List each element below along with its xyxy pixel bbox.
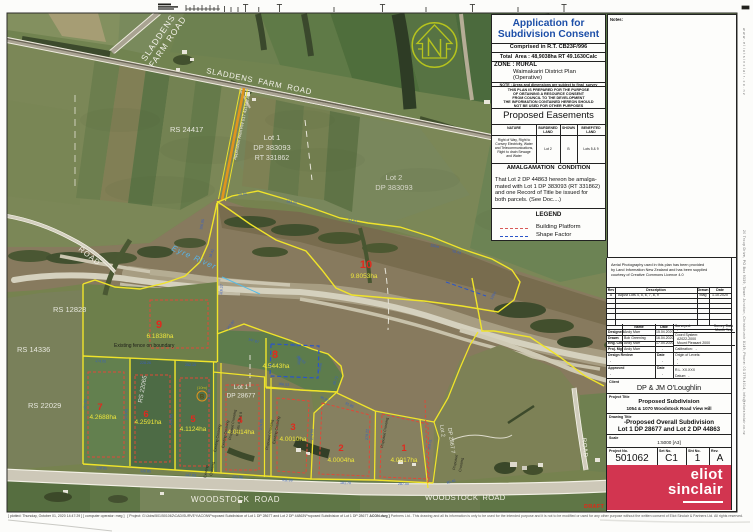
svg-text:DP 28677: DP 28677	[227, 393, 256, 400]
svg-text:4.2591ha: 4.2591ha	[134, 419, 161, 426]
svg-text:8: 8	[272, 349, 278, 361]
svg-text:B: B	[200, 395, 205, 401]
svg-text:274.05: 274.05	[124, 409, 128, 420]
svg-text:311.00: 311.00	[282, 478, 293, 482]
svg-text:128.85: 128.85	[96, 466, 107, 471]
svg-text:5: 5	[190, 414, 196, 425]
svg-text:375.08: 375.08	[207, 389, 211, 400]
svg-text:WOODSTOCK ROAD: WOODSTOCK ROAD	[191, 495, 280, 504]
svg-text:252.19: 252.19	[185, 363, 196, 367]
svg-text:4.2688ha: 4.2688ha	[89, 414, 116, 421]
svg-text:274.05: 274.05	[169, 414, 173, 425]
svg-text:279.22: 279.22	[365, 429, 369, 440]
svg-text:151.92: 151.92	[83, 399, 87, 410]
svg-text:(10m): (10m)	[197, 385, 208, 390]
svg-text:4.0004ha: 4.0004ha	[327, 457, 354, 464]
svg-text:4.1124ha: 4.1124ha	[180, 426, 207, 433]
svg-text:100m: 100m	[290, 343, 299, 348]
svg-text:RS 24417: RS 24417	[170, 125, 203, 134]
svg-text:9.8053ha: 9.8053ha	[350, 273, 377, 280]
svg-text:RT 331862: RT 331862	[255, 155, 289, 162]
svg-text:Lot 2: Lot 2	[386, 173, 403, 182]
svg-text:2: 2	[338, 443, 343, 454]
svg-text:RS 14336: RS 14336	[17, 345, 50, 354]
svg-text:RS 12828: RS 12828	[53, 305, 86, 314]
svg-text:Lot 1: Lot 1	[234, 384, 249, 391]
svg-text:274.05: 274.05	[259, 419, 263, 430]
svg-text:1: 1	[401, 443, 407, 454]
svg-text:DP 383093: DP 383093	[253, 143, 290, 152]
svg-text:228.26: 228.26	[140, 361, 151, 365]
svg-text:10: 10	[360, 259, 372, 271]
svg-text:274.56: 274.56	[310, 429, 314, 440]
svg-text:287.00: 287.00	[398, 482, 409, 486]
svg-text:7: 7	[97, 402, 102, 413]
svg-text:4.0017ha: 4.0017ha	[390, 457, 417, 464]
svg-text:6.1838ha: 6.1838ha	[146, 333, 173, 340]
svg-text:131.06: 131.06	[232, 475, 243, 480]
svg-text:147.03: 147.03	[185, 473, 196, 478]
svg-text:181.70: 181.70	[340, 481, 351, 485]
svg-text:4.0010ha: 4.0010ha	[279, 436, 306, 443]
svg-text:RS 22029: RS 22029	[28, 401, 61, 410]
svg-text:4.5443ha: 4.5443ha	[262, 363, 289, 370]
svg-text:WOODSTOCK ROAD: WOODSTOCK ROAD	[425, 493, 506, 502]
svg-text:3: 3	[290, 422, 295, 433]
svg-text:DRAFT: DRAFT	[584, 504, 604, 510]
svg-text:9: 9	[156, 319, 162, 331]
svg-text:Existing fence on boundary: Existing fence on boundary	[114, 343, 175, 349]
svg-text:174.55: 174.55	[95, 359, 106, 364]
svg-text:126.85: 126.85	[140, 469, 151, 474]
svg-text:Lot 1: Lot 1	[264, 133, 281, 142]
svg-text:DP 383093: DP 383093	[375, 183, 412, 192]
